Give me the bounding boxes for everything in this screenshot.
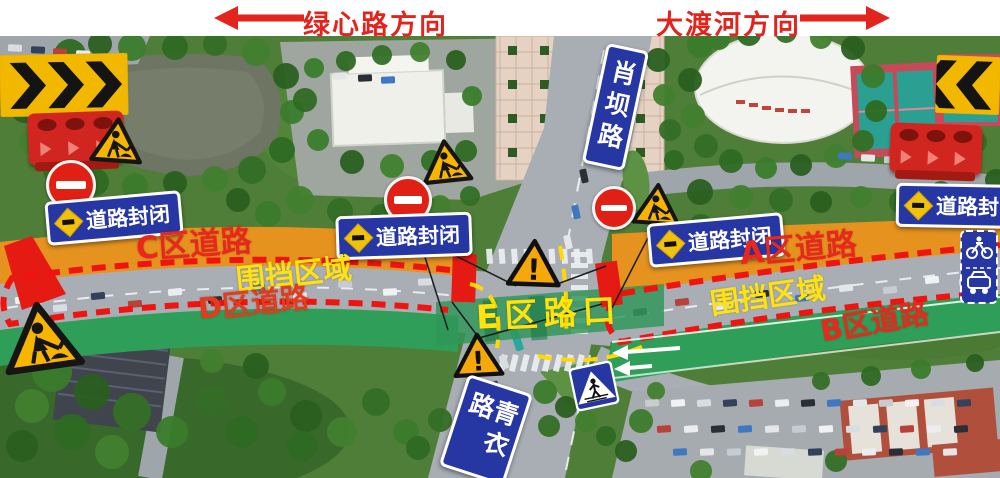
roadwork-diamond-icon [904, 190, 934, 220]
direction-header: 绿心路方向 大渡河方向 [0, 0, 1000, 36]
zone-e-label: E区路口 [475, 293, 622, 334]
warning-glyph: ! [471, 346, 485, 378]
closure-block [451, 254, 477, 303]
roadwork-diamond-icon [656, 229, 686, 259]
roadwork-sign-icon [0, 295, 87, 378]
warning-glyph: ! [527, 253, 541, 287]
pedestrian-crossing-sign-icon [568, 360, 620, 412]
roadwork-diamond-icon [344, 223, 374, 253]
zone-c-label: C区道路 [135, 226, 253, 265]
traffic-closure-map: 绿心路方向 大渡河方向 [0, 0, 1000, 478]
chevron-board-right-icon [0, 53, 129, 117]
left-direction-arrow-icon [214, 4, 306, 32]
water-barrier-icon [889, 122, 983, 175]
road-closed-sign: 道路封闭 [335, 212, 472, 261]
no-entry-sign-icon [592, 186, 636, 230]
right-direction-arrow-icon [798, 4, 890, 32]
chevron-board-left-icon [935, 55, 1000, 115]
warning-triangle-icon: ! [505, 237, 563, 289]
warning-triangle-icon: ! [451, 331, 505, 380]
roadwork-diamond-icon [54, 207, 84, 237]
lane-sign-icon [960, 230, 998, 304]
right-direction-label: 大渡河方向 [656, 3, 801, 42]
road-closed-label: 道路封闭 [936, 191, 1000, 222]
road-closed-label: 道路封闭 [375, 219, 460, 252]
roadwork-sign-icon [418, 135, 475, 186]
left-direction-label: 绿心路方向 [303, 3, 448, 42]
road-closed-sign: 道路封闭 [896, 183, 1000, 229]
roadwork-sign-icon [88, 114, 145, 166]
